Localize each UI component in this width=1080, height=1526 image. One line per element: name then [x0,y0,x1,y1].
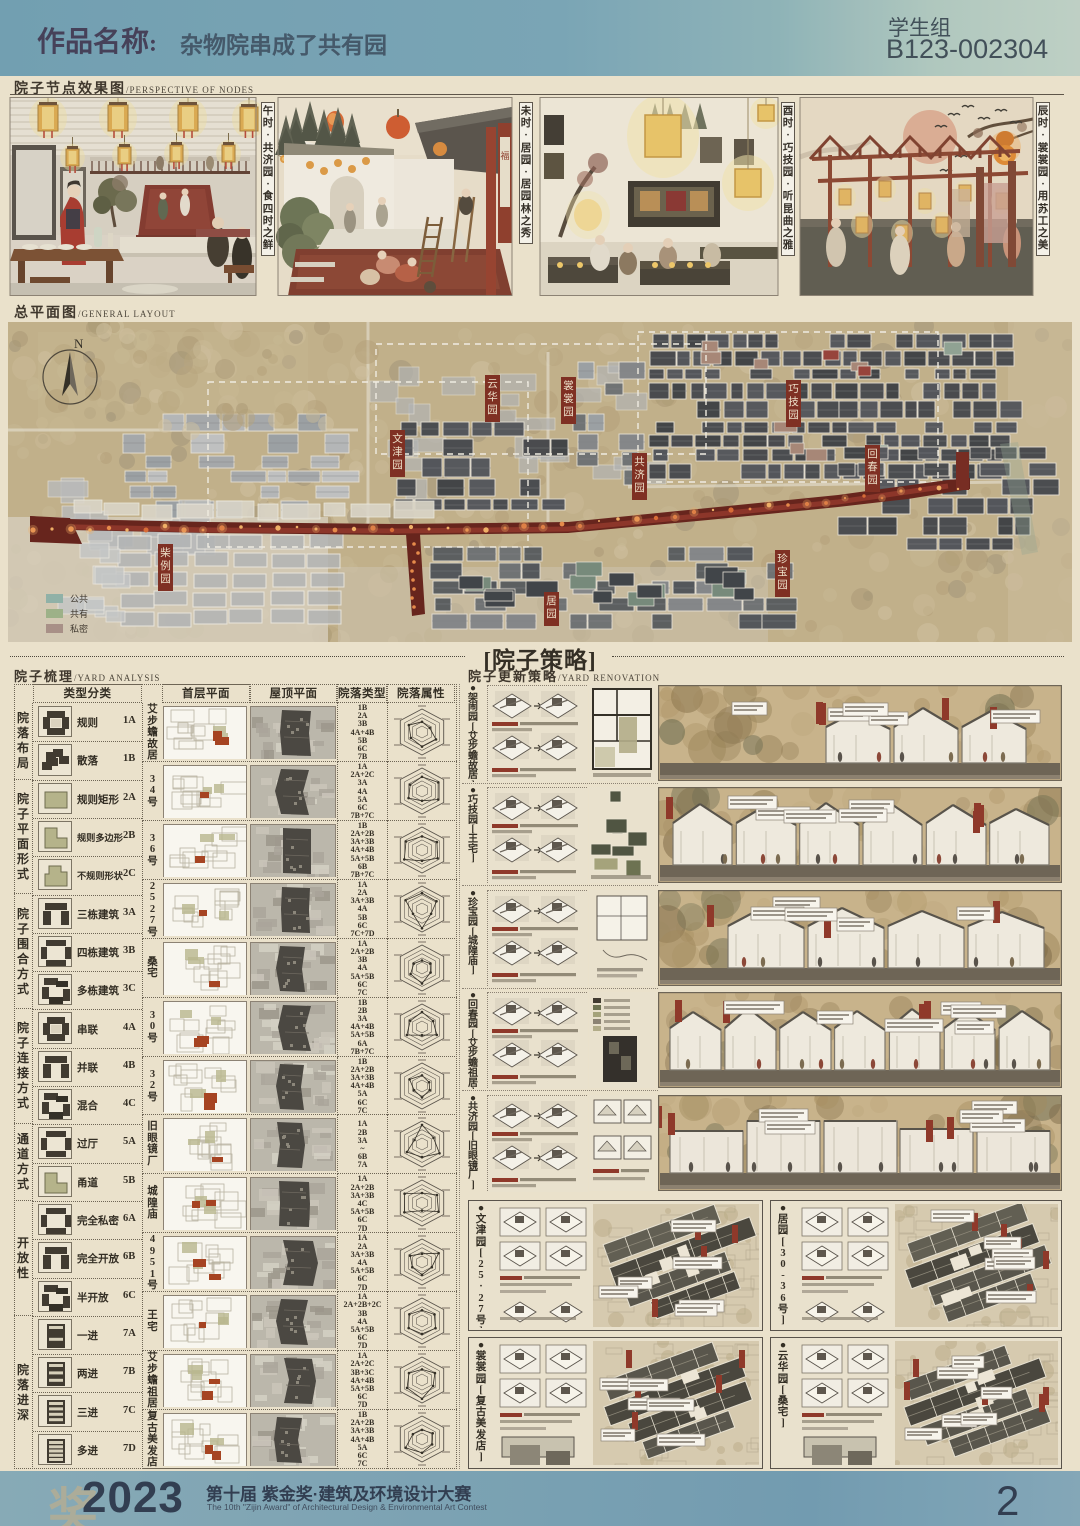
svg-text:私密: 私密 [70,623,88,634]
svg-text:云: 云 [487,379,498,390]
svg-text:济: 济 [634,468,645,481]
svg-text:园: 园 [634,482,645,494]
svg-text:文: 文 [392,432,403,445]
svg-text:华: 华 [487,390,498,403]
svg-text:裳: 裳 [563,380,574,392]
svg-text:共有: 共有 [70,608,88,619]
svg-text:园: 园 [160,573,171,585]
svg-text:巧: 巧 [788,384,799,395]
svg-text:技: 技 [788,395,799,408]
svg-text:春: 春 [867,461,878,473]
svg-text:园: 园 [788,409,799,421]
svg-text:回: 回 [867,448,878,460]
svg-text:园: 园 [546,608,557,620]
svg-text:宝: 宝 [777,565,788,578]
svg-text:福: 福 [500,150,509,161]
svg-text:共: 共 [634,456,645,468]
svg-text:津: 津 [392,446,403,458]
svg-text:园: 园 [867,474,878,486]
svg-text:N: N [74,336,84,351]
svg-text:珍: 珍 [777,553,788,565]
svg-text:园: 园 [777,579,788,591]
svg-text:园: 园 [563,406,574,418]
svg-text:例: 例 [160,559,171,572]
svg-text:园: 园 [392,459,403,471]
svg-text:园: 园 [487,404,498,416]
svg-text:公共: 公共 [70,594,88,604]
svg-text:柴: 柴 [160,546,171,559]
svg-text:裳: 裳 [563,393,574,405]
svg-text:居: 居 [546,595,557,607]
